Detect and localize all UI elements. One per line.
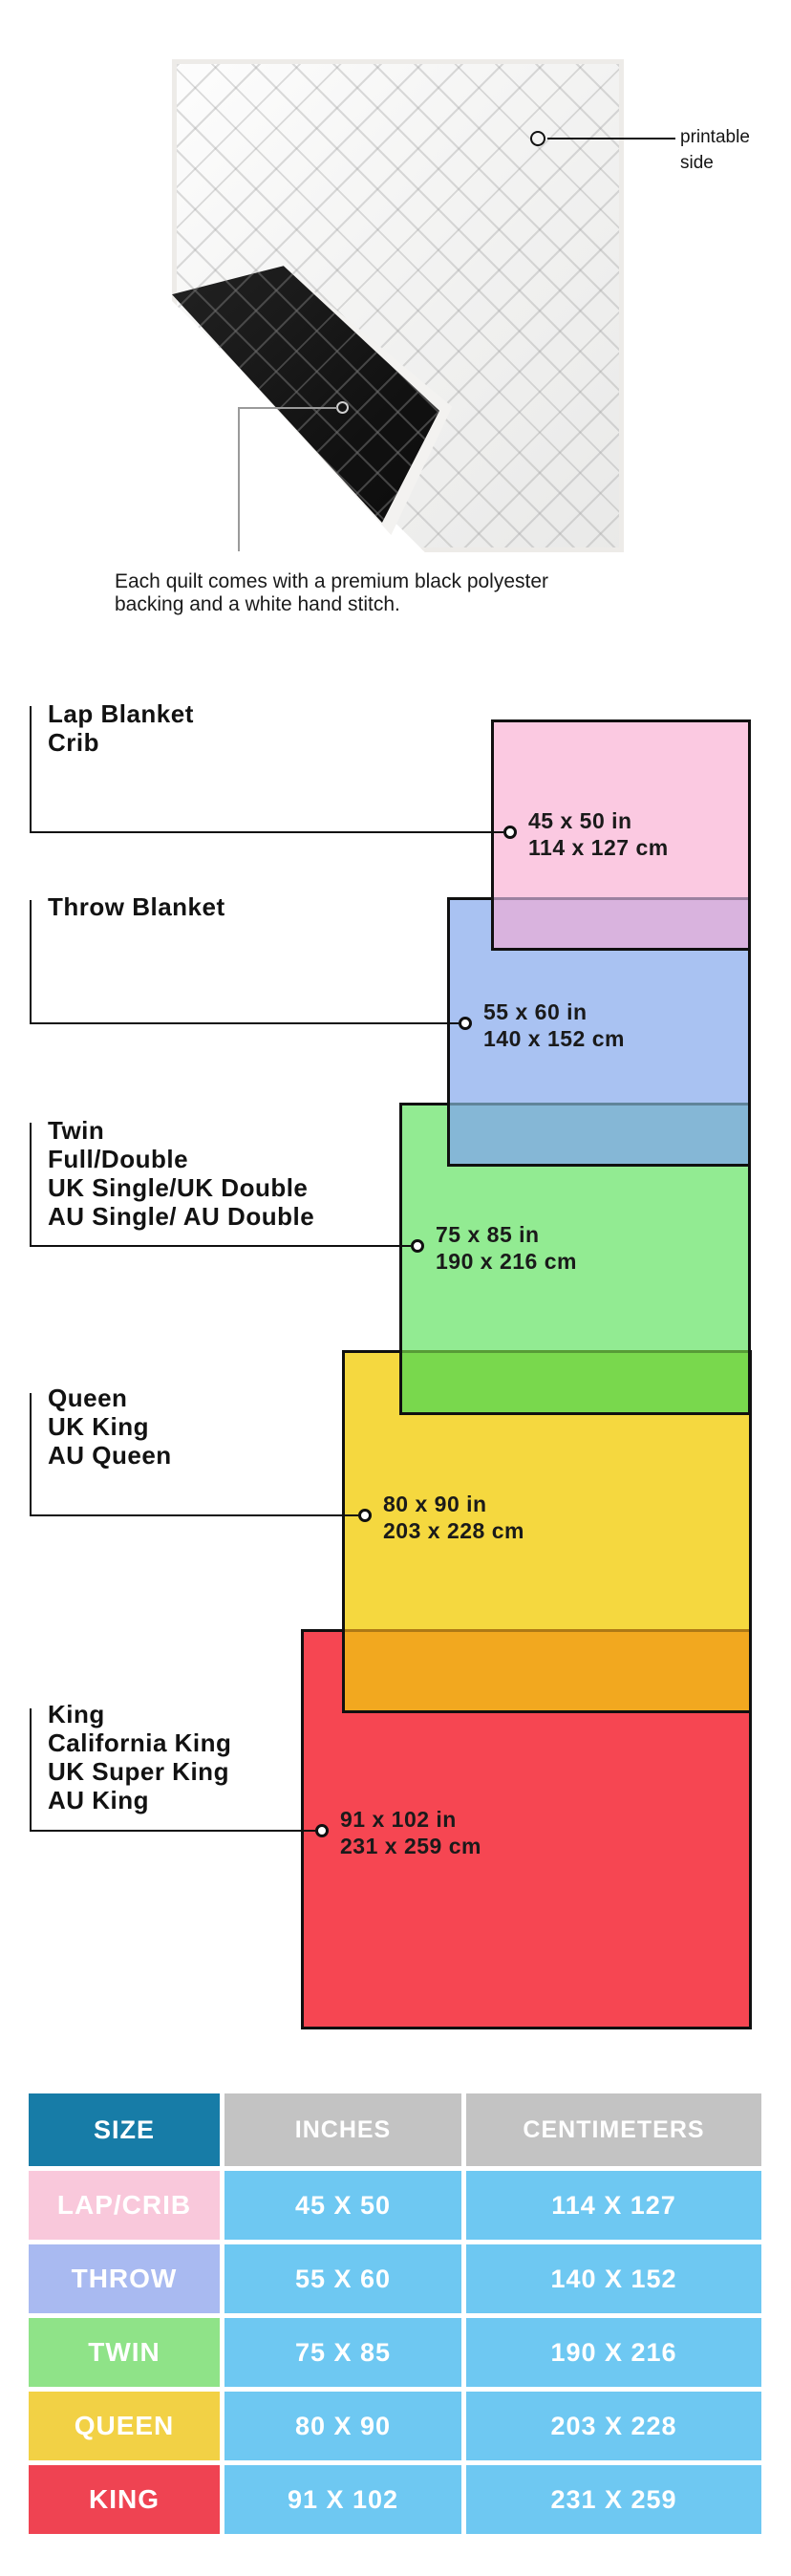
- overlap-lap-throw: [494, 897, 748, 948]
- twin-label: Twin Full/Double UK Single/UK Double AU …: [48, 1116, 314, 1231]
- table-row-twin-inches: 75 X 85: [224, 2318, 461, 2387]
- throw-label: Throw Blanket: [48, 892, 225, 921]
- table-row-throw-inches: 55 X 60: [224, 2244, 461, 2313]
- table-row-lap-cm: 114 X 127: [466, 2171, 761, 2240]
- twin-callout-line-h: [30, 1245, 411, 1247]
- lap-callout-line-v: [30, 706, 32, 833]
- table-row-throw-label: THROW: [29, 2244, 220, 2313]
- printable-side-label: printable side: [680, 124, 750, 176]
- table-row-lap-label: LAP/CRIB: [29, 2171, 220, 2240]
- king-label: King California King UK Super King AU Ki…: [48, 1700, 231, 1814]
- twin-dim-marker-icon: [411, 1239, 424, 1253]
- table-row-twin-cm: 190 X 216: [466, 2318, 761, 2387]
- queen-dimensions: 80 x 90 in 203 x 228 cm: [383, 1491, 524, 1544]
- overlap-twin-queen: [402, 1350, 748, 1412]
- backing-callout-line-h: [238, 407, 337, 409]
- backing-callout-line-v: [238, 408, 240, 551]
- throw-callout-line-v: [30, 900, 32, 1024]
- size-table: SIZE INCHES CENTIMETERS LAP/CRIB 45 X 50…: [29, 2093, 761, 2534]
- king-dimensions: 91 x 102 in 231 x 259 cm: [340, 1806, 481, 1859]
- lap-dimensions: 45 x 50 in 114 x 127 cm: [528, 807, 669, 861]
- queen-dim-marker-icon: [358, 1509, 372, 1522]
- overlap-queen-king: [345, 1629, 749, 1710]
- printable-side-callout-line: [547, 138, 675, 140]
- table-row-king-label: KING: [29, 2465, 220, 2534]
- quilt-caption: Each quilt comes with a premium black po…: [115, 570, 688, 616]
- king-dim-marker-icon: [315, 1824, 329, 1837]
- queen-callout-line-v: [30, 1393, 32, 1516]
- backing-marker-icon: [336, 401, 349, 414]
- overlap-throw-twin: [450, 1103, 748, 1164]
- table-header-size: SIZE: [29, 2093, 220, 2166]
- lap-label: Lap Blanket Crib: [48, 699, 194, 757]
- lap-callout-line-h: [30, 831, 503, 833]
- table-row-queen-label: QUEEN: [29, 2392, 220, 2460]
- product-size-chart-page: printable side Each quilt comes with a p…: [0, 0, 791, 2576]
- twin-callout-line-v: [30, 1123, 32, 1247]
- table-row-queen-inches: 80 X 90: [224, 2392, 461, 2460]
- table-row-king-inches: 91 X 102: [224, 2465, 461, 2534]
- table-header-centimeters: CENTIMETERS: [466, 2093, 761, 2166]
- table-row-king-cm: 231 X 259: [466, 2465, 761, 2534]
- throw-dimensions: 55 x 60 in 140 x 152 cm: [483, 998, 625, 1052]
- queen-callout-line-h: [30, 1514, 358, 1516]
- table-header-inches: INCHES: [224, 2093, 461, 2166]
- king-callout-line-v: [30, 1708, 32, 1832]
- throw-dim-marker-icon: [459, 1017, 472, 1030]
- printable-side-marker-icon: [530, 131, 545, 146]
- table-row-lap-inches: 45 X 50: [224, 2171, 461, 2240]
- king-callout-line-h: [30, 1830, 315, 1832]
- table-row-twin-label: TWIN: [29, 2318, 220, 2387]
- twin-dimensions: 75 x 85 in 190 x 216 cm: [436, 1221, 577, 1275]
- lap-dim-marker-icon: [503, 826, 517, 839]
- table-row-throw-cm: 140 X 152: [466, 2244, 761, 2313]
- table-row-queen-cm: 203 X 228: [466, 2392, 761, 2460]
- queen-label: Queen UK King AU Queen: [48, 1384, 172, 1470]
- throw-callout-line-h: [30, 1022, 459, 1024]
